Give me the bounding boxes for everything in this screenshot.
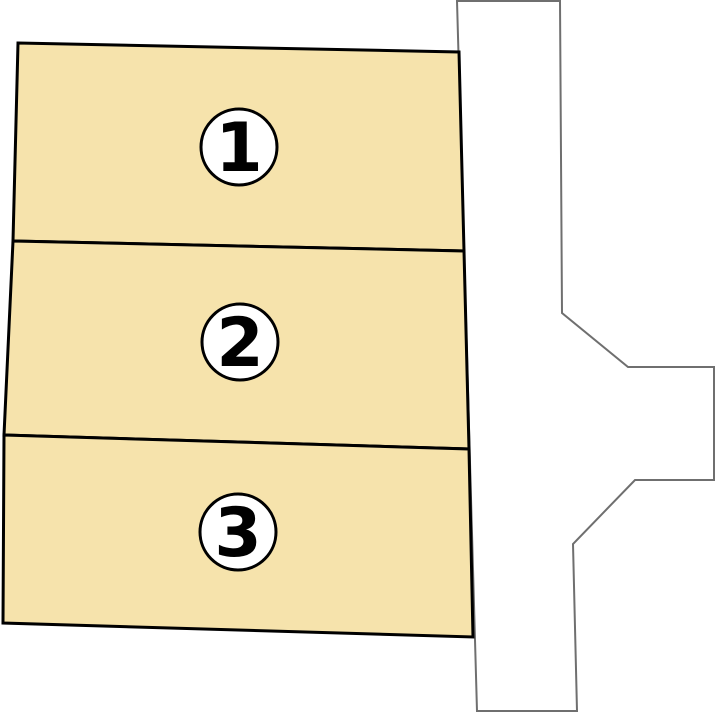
road-shape [457,1,714,711]
lot-2-number: 2 [216,304,263,383]
lot-map: 123 [0,0,715,712]
lot-1-number: 1 [215,109,262,188]
lot-3-number: 3 [214,494,261,573]
lot-map-canvas: 123 [0,0,715,712]
